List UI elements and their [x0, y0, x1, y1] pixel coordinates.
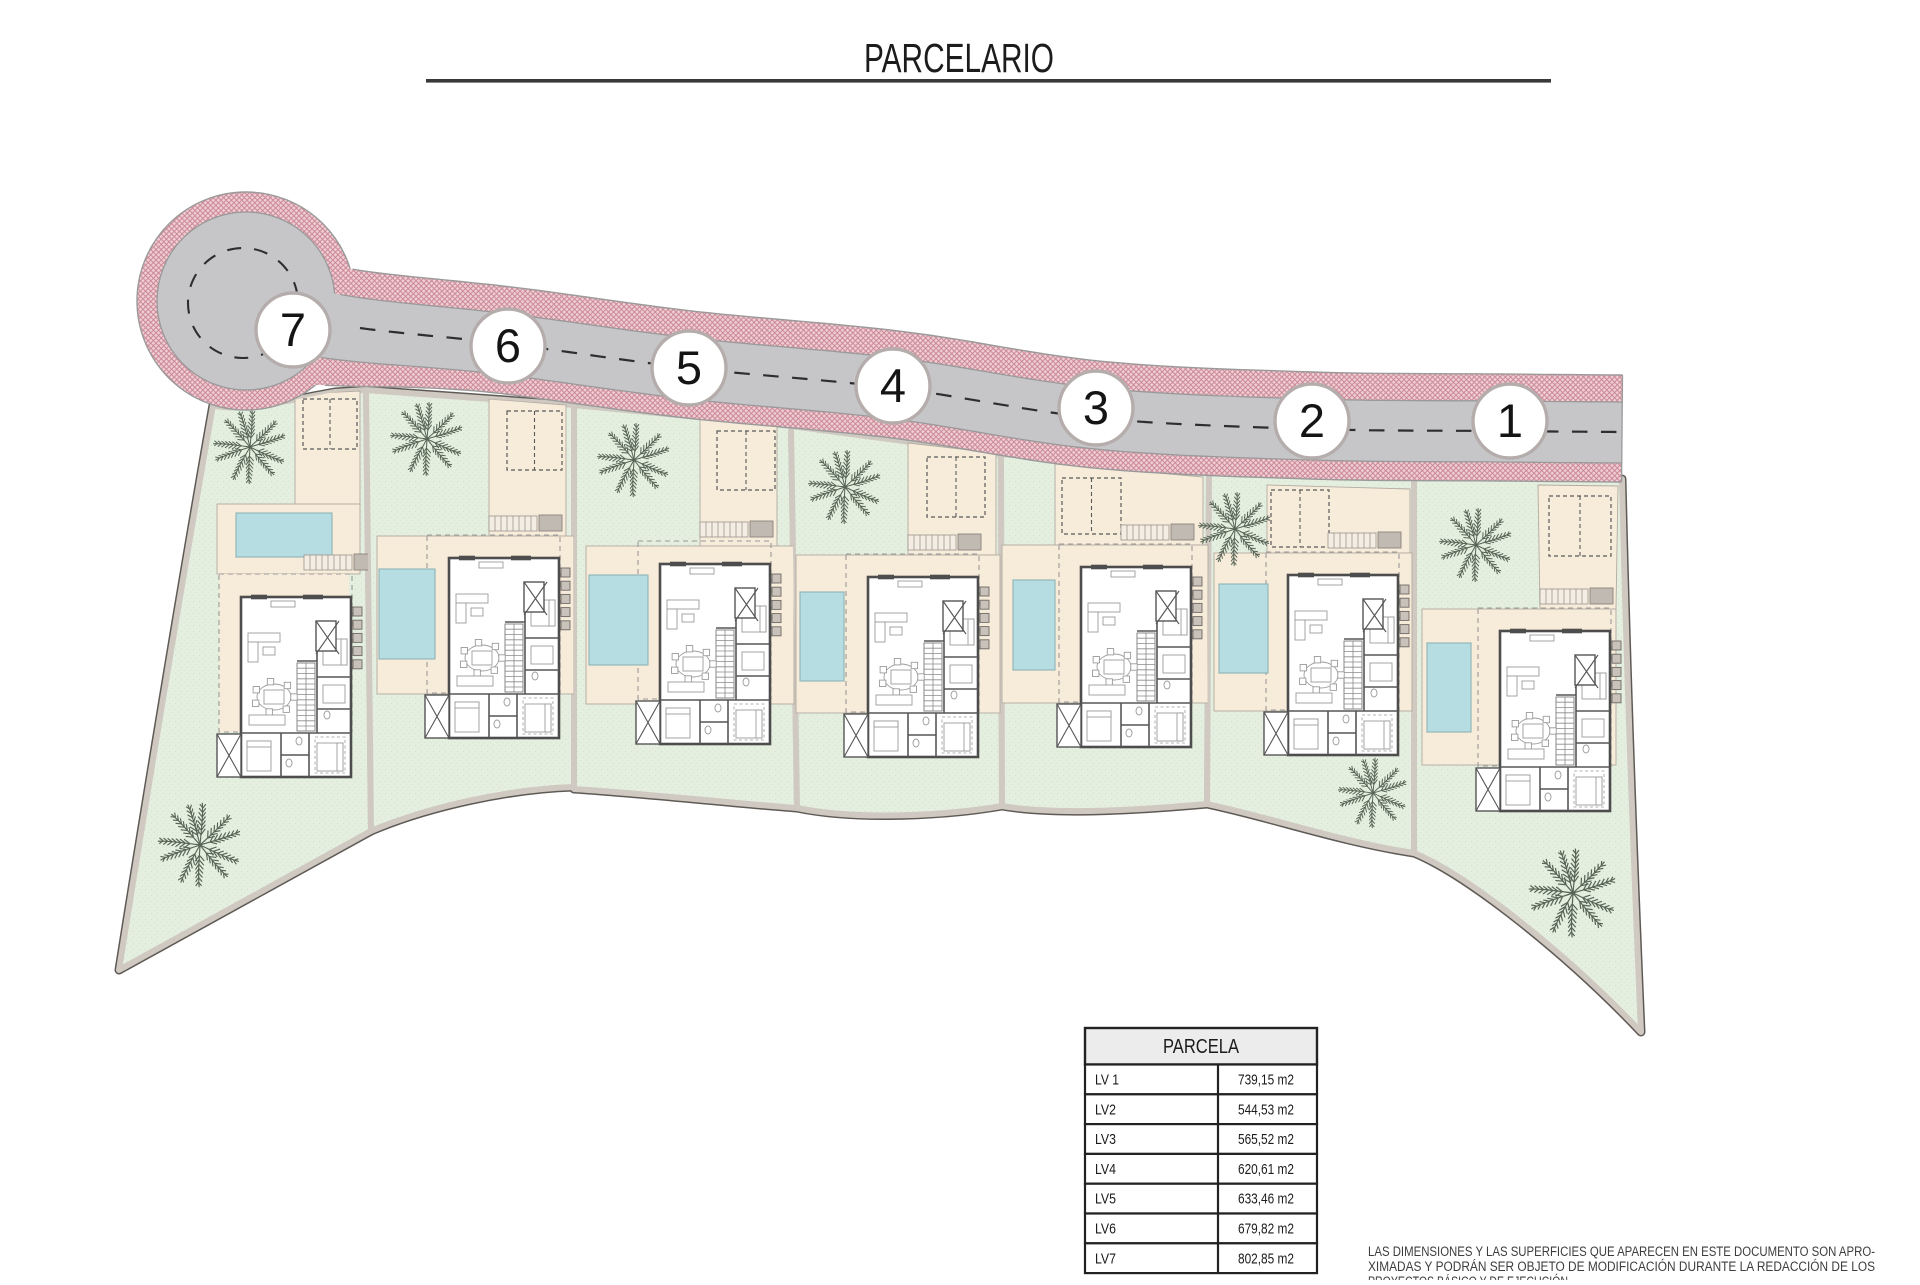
- svg-text:565,52 m2: 565,52 m2: [1238, 1131, 1294, 1148]
- svg-text:5: 5: [676, 341, 702, 394]
- svg-text:LV6: LV6: [1095, 1221, 1116, 1238]
- svg-text:679,82 m2: 679,82 m2: [1238, 1221, 1294, 1238]
- svg-text:LV5: LV5: [1095, 1191, 1116, 1208]
- svg-text:4: 4: [880, 359, 906, 412]
- svg-text:6: 6: [495, 319, 521, 372]
- svg-text:1: 1: [1497, 394, 1523, 447]
- svg-text:XIMADAS Y PODRÁN SER OBJETO DE: XIMADAS Y PODRÁN SER OBJETO DE MODIFICAC…: [1368, 1259, 1875, 1274]
- svg-text:PARCELA: PARCELA: [1163, 1035, 1239, 1058]
- svg-text:LV3: LV3: [1095, 1131, 1116, 1148]
- svg-text:LV2: LV2: [1095, 1101, 1116, 1118]
- svg-text:PARCELARIO: PARCELARIO: [864, 35, 1054, 81]
- svg-text:620,61 m2: 620,61 m2: [1238, 1161, 1294, 1178]
- svg-text:LV7: LV7: [1095, 1250, 1116, 1267]
- svg-text:802,85 m2: 802,85 m2: [1238, 1250, 1294, 1267]
- svg-text:739,15 m2: 739,15 m2: [1238, 1072, 1294, 1089]
- svg-text:7: 7: [280, 303, 306, 356]
- svg-text:544,53 m2: 544,53 m2: [1238, 1101, 1294, 1118]
- svg-text:633,46 m2: 633,46 m2: [1238, 1191, 1294, 1208]
- svg-text:2: 2: [1299, 394, 1325, 447]
- svg-text:PROYECTOS BÁSICO Y DE EJECUCIÓ: PROYECTOS BÁSICO Y DE EJECUCIÓN: [1368, 1274, 1568, 1280]
- svg-text:3: 3: [1083, 381, 1109, 434]
- svg-text:LAS DIMENSIONES Y LAS SUPERFIC: LAS DIMENSIONES Y LAS SUPERFICIES QUE AP…: [1368, 1244, 1875, 1259]
- svg-text:LV 1: LV 1: [1095, 1072, 1119, 1089]
- svg-text:LV4: LV4: [1095, 1161, 1116, 1178]
